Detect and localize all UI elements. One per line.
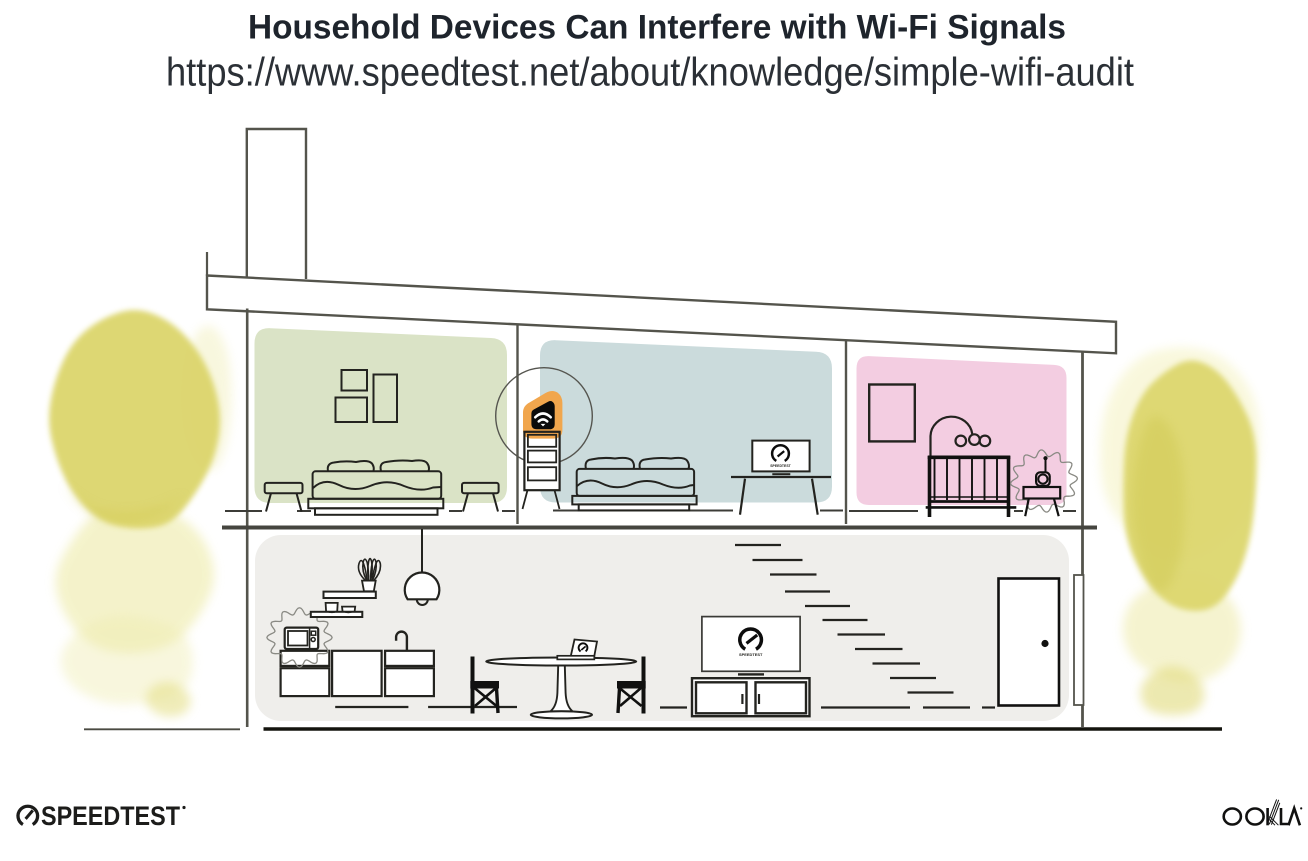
svg-text:SPEEDTEST: SPEEDTEST [770,464,791,468]
svg-text:SPEEDTEST: SPEEDTEST [41,801,180,831]
svg-text:SPEEDTEST: SPEEDTEST [739,652,763,657]
svg-text:Household Devices Can Interfer: Household Devices Can Interfere with Wi-… [248,9,1066,47]
svg-text:https://www.speedtest.net/abou: https://www.speedtest.net/about/knowledg… [166,51,1134,95]
